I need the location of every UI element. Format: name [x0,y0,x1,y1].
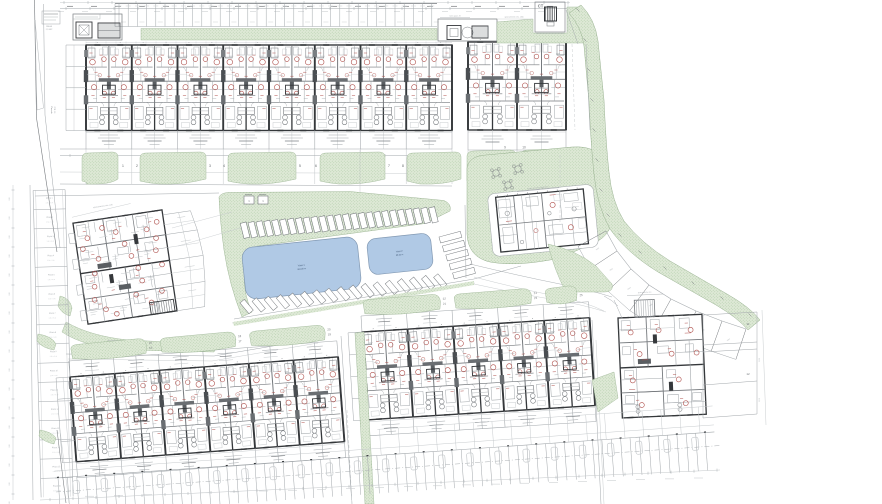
svg-text:2,50 x 5,00: 2,50 x 5,00 [47,241,55,243]
svg-text:3,00: 3,00 [9,387,11,390]
svg-text:3,00: 3,00 [9,311,11,314]
svg-text:Plaza 3: Plaza 3 [47,236,55,238]
svg-text:3,00: 3,00 [9,330,11,333]
svg-text:9: 9 [504,146,506,150]
svg-text:Plaza 2: Plaza 2 [46,217,54,219]
svg-text:Plaza 9: Plaza 9 [50,351,58,353]
svg-text:3,00: 3,00 [9,273,11,276]
svg-text:torre aparc. B: torre aparc. B [450,15,462,18]
svg-text:ZANJA: ZANJA [46,25,52,28]
svg-text:2,50 x 5,00: 2,50 x 5,00 [46,202,54,204]
svg-text:Plaza 11: Plaza 11 [50,389,59,391]
svg-text:3,00: 3,00 [9,254,11,257]
svg-text:12: 12 [746,372,750,376]
svg-text:2,50 x 5,00: 2,50 x 5,00 [52,452,60,454]
svg-text:5: 5 [299,164,301,168]
svg-text:2,50 x 5,00: 2,50 x 5,00 [50,375,58,377]
svg-text:8: 8 [402,164,404,168]
svg-text:Plaza 16: Plaza 16 [53,485,62,487]
svg-text:2,50 x 5,00: 2,50 x 5,00 [48,298,56,300]
svg-text:Plaza 1: Plaza 1 [46,198,54,200]
svg-text:CT: CT [538,4,544,9]
svg-text:eq: eq [248,201,250,203]
svg-text:10: 10 [522,146,526,150]
svg-text:11: 11 [746,322,749,326]
svg-text:Plaza 4: Plaza 4 [47,255,55,257]
svg-text:2,50 x 5,00: 2,50 x 5,00 [50,356,58,358]
svg-text:3: 3 [209,164,211,168]
svg-text:Plaza 6: Plaza 6 [48,294,56,296]
svg-text:2,50 x 5,00: 2,50 x 5,00 [48,279,56,281]
svg-text:eq: eq [262,201,264,203]
svg-text:Plaza 10: Plaza 10 [50,370,59,372]
svg-text:1: 1 [122,164,124,168]
svg-text:2,50 x 5,00: 2,50 x 5,00 [49,317,57,319]
svg-text:25,00: 25,00 [759,358,761,362]
svg-text:3,00: 3,00 [9,463,11,466]
svg-text:2,50 x 5,00: 2,50 x 5,00 [52,432,60,434]
svg-text:3,00: 3,00 [9,349,11,352]
svg-text:aparcamiento vinc. (16): aparcamiento vinc. (16) [505,16,524,19]
svg-text:3,00: 3,00 [9,235,11,238]
svg-text:Plaza 7: Plaza 7 [49,313,57,315]
svg-text:6: 6 [315,164,317,168]
svg-text:Parcela: Parcela [50,107,52,115]
svg-text:2,50 x 5,00: 2,50 x 5,00 [53,471,61,473]
svg-text:2,5 ESP: 2,5 ESP [46,29,53,31]
svg-text:3,00: 3,00 [9,406,11,409]
svg-text:Plaza 5: Plaza 5 [48,274,56,276]
svg-text:3,00: 3,00 [9,292,11,295]
svg-text:Plaza 13: Plaza 13 [51,428,60,430]
svg-text:3,00: 3,00 [9,482,11,485]
svg-text:3,00: 3,00 [9,368,11,371]
svg-text:2,50 x 5,00: 2,50 x 5,00 [51,413,59,415]
svg-text:2,50 x 5,00: 2,50 x 5,00 [47,260,55,262]
svg-text:3,00: 3,00 [9,444,11,447]
svg-text:7: 7 [388,164,390,168]
svg-text:2,50 x 5,00: 2,50 x 5,00 [46,221,54,223]
svg-text:P7B 7/9: P7B 7/9 [53,107,55,113]
svg-text:Plaza 8: Plaza 8 [49,332,57,334]
svg-text:12,50: 12,50 [759,398,761,402]
svg-text:2: 2 [136,164,138,168]
svg-text:Plaza 15: Plaza 15 [52,466,61,468]
svg-text:3,00: 3,00 [9,216,11,219]
svg-text:3,00: 3,00 [9,425,11,428]
svg-text:3,00: 3,00 [9,197,11,200]
svg-text:4: 4 [223,164,225,168]
